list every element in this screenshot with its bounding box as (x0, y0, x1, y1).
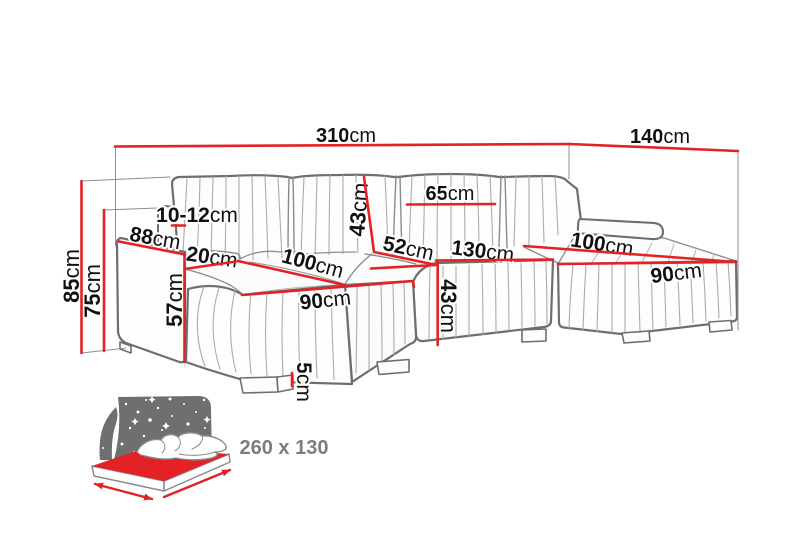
svg-text:5cm: 5cm (292, 362, 315, 402)
svg-text:75cm: 75cm (80, 264, 105, 318)
svg-text:140cm: 140cm (630, 126, 690, 148)
svg-text:43cm: 43cm (436, 279, 461, 333)
svg-text:10-12cm: 10-12cm (156, 204, 238, 227)
svg-text:310cm: 310cm (316, 125, 376, 147)
svg-text:260 x 130: 260 x 130 (240, 437, 329, 459)
svg-text:65cm: 65cm (426, 183, 475, 205)
